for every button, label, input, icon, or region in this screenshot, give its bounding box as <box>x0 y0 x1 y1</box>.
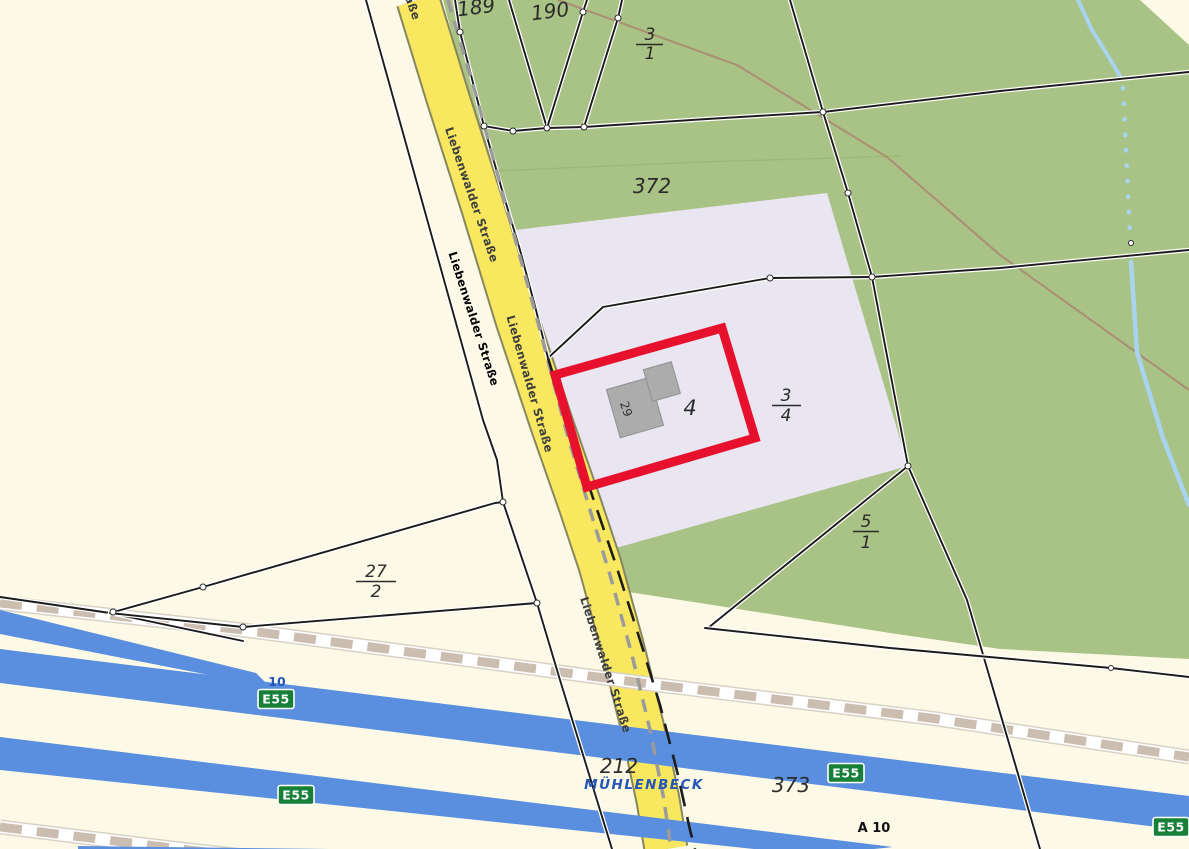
shield-text: E55 <box>262 692 289 707</box>
fraction-numerator: 27 <box>365 562 387 582</box>
e55-shield-4: E55 <box>1153 818 1189 837</box>
fraction-numerator: 3 <box>781 386 792 406</box>
parcel-label-372: 372 <box>633 174 671 198</box>
place-label-muehlenbeck: MÜHLENBECK <box>584 775 704 793</box>
shield-text: E55 <box>1157 820 1184 835</box>
map-canvas[interactable]: 189 190 372 212 373 4 3 1 3 4 5 1 27 2 2… <box>0 0 1189 849</box>
fraction-numerator: 5 <box>861 512 872 532</box>
e55-shield-1: E55 <box>258 690 294 709</box>
e55-shield-3: E55 <box>828 764 864 783</box>
motorway-name-label: A 10 <box>858 821 891 836</box>
fraction-denominator: 4 <box>781 406 792 426</box>
fraction-numerator: 3 <box>645 25 656 45</box>
house-number-label: 4 <box>683 396 696 420</box>
fraction-denominator: 1 <box>861 533 872 553</box>
parcel-label-212: 212 <box>600 754 638 778</box>
e55-shield-2: E55 <box>278 786 314 805</box>
parcel-label-373: 373 <box>772 773 810 797</box>
motorway-number-label: 10 <box>268 674 286 689</box>
fraction-denominator: 1 <box>645 44 656 64</box>
shield-text: E55 <box>832 766 859 781</box>
shield-text: E55 <box>282 788 309 803</box>
fraction-denominator: 2 <box>371 582 382 602</box>
